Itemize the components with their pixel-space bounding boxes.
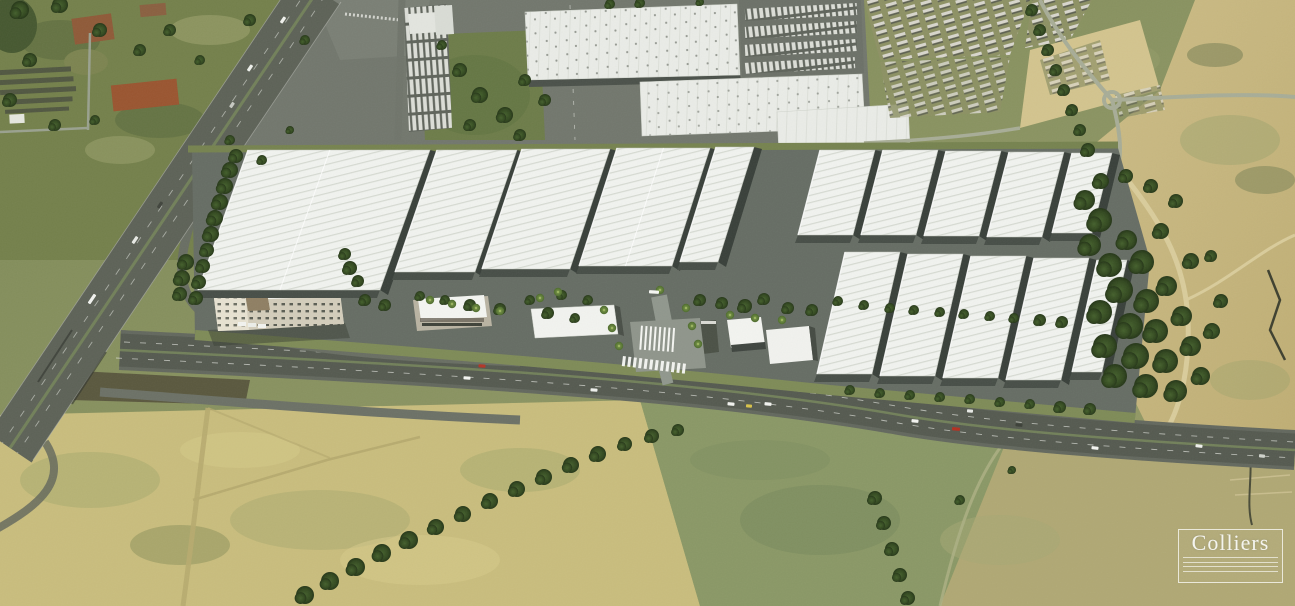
photo-grain-overlay	[0, 0, 1295, 606]
colliers-logo-text: Colliers	[1192, 531, 1270, 555]
aerial-render-canvas	[0, 0, 1295, 606]
colliers-logo-lines	[1183, 557, 1278, 575]
aerial-industrial-park-render: Colliers	[0, 0, 1295, 606]
colliers-watermark: Colliers	[1178, 529, 1283, 583]
